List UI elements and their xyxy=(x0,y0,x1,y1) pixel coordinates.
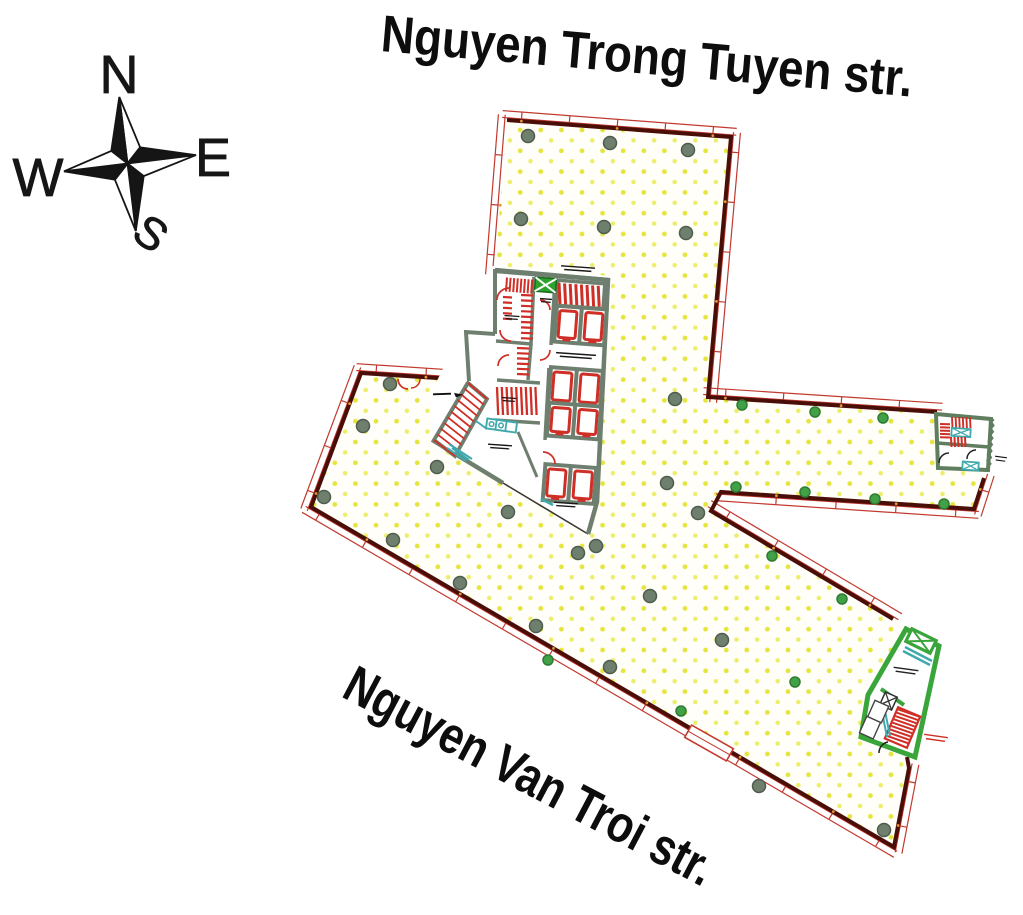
svg-text:N: N xyxy=(100,45,139,105)
svg-text:W: W xyxy=(13,148,64,208)
svg-text:E: E xyxy=(195,128,231,188)
